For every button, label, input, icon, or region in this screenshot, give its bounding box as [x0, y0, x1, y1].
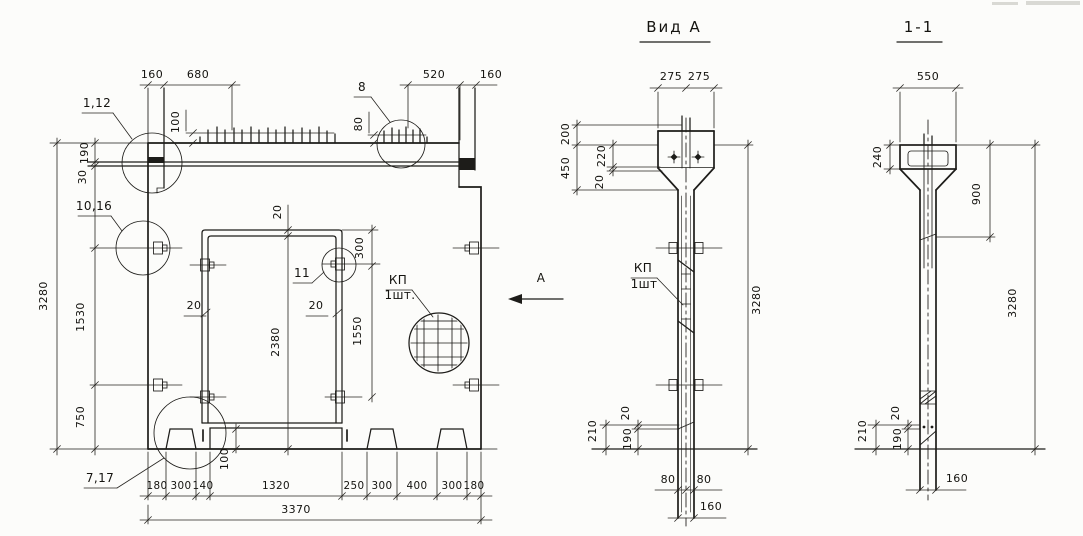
section-dim-240: 240 — [871, 146, 884, 168]
callout-kp-qty: 1шт. — [384, 288, 415, 302]
dim-stud-80: 80 — [352, 117, 365, 132]
view-arrow-label: А — [537, 271, 546, 285]
section-dim-190: 190 — [891, 428, 904, 450]
callout-11: 11 — [294, 266, 310, 280]
section-dims: 550 240 900 3280 210 20 190 160 — [856, 70, 1040, 493]
callout-10-16: 10,16 — [76, 199, 112, 213]
dim-top-160-right: 160 — [480, 68, 502, 81]
view-a-plates — [656, 243, 722, 391]
bottom-feet — [166, 428, 467, 449]
scan-artifact — [992, 1, 1080, 5]
section-dim-550: 550 — [917, 70, 939, 83]
view-a-column — [592, 116, 757, 526]
technical-drawing-page: 160 680 520 160 100 80 190 30 3280 1530 … — [0, 0, 1083, 536]
panel-outline — [50, 88, 497, 449]
view-a-dim-190: 190 — [621, 428, 634, 450]
dim-opening-2380: 2380 — [269, 327, 282, 357]
callout-labels: 1,12 10,16 7,17 8 11 КП 1шт. — [76, 80, 433, 488]
dim-left-30: 30 — [76, 170, 89, 185]
view-a-kp-label: КП 1шт — [631, 261, 683, 305]
dim-bottom-250: 250 — [343, 480, 364, 492]
section-dim-900: 900 — [970, 183, 983, 205]
dim-jamb-20-left: 20 — [187, 299, 202, 312]
view-a-dim-220: 220 — [595, 145, 608, 167]
callout-kp: КП — [389, 273, 407, 287]
dim-opening: 20 2380 300 1550 20 20 100 — [184, 205, 378, 471]
view-a-dim-275b: 275 — [688, 70, 710, 83]
drawing-canvas: 160 680 520 160 100 80 190 30 3280 1530 … — [0, 0, 1083, 536]
view-a: Вид А — [559, 18, 763, 526]
section-1-1-title: 1-1 — [904, 18, 935, 36]
dim-left-3280: 3280 — [37, 281, 50, 311]
view-a-dim-3280: 3280 — [750, 285, 763, 315]
dim-row-top: 160 680 520 160 — [140, 68, 502, 140]
main-view: 160 680 520 160 100 80 190 30 3280 1530 … — [37, 68, 502, 524]
dim-left-190: 190 — [78, 142, 91, 164]
hatch-band — [920, 391, 936, 404]
dim-bottom-1320: 1320 — [262, 480, 290, 492]
view-a-dim-275a: 275 — [660, 70, 682, 83]
dim-opening-1550: 1550 — [351, 316, 364, 346]
dim-bottom-300a: 300 — [170, 480, 191, 492]
section-dim-210: 210 — [856, 420, 869, 442]
view-a-dim-160: 160 — [700, 500, 722, 513]
dim-top-520: 520 — [423, 68, 445, 81]
dim-opening-300: 300 — [353, 237, 366, 259]
view-a-dims: 275 275 200 450 220 20 3280 210 20 190 — [559, 70, 763, 521]
view-a-dim-200: 200 — [559, 123, 572, 145]
section-1-1: 1-1 55 — [855, 18, 1045, 500]
detail-callout-circles — [116, 120, 425, 469]
dim-bottom-300b: 300 — [371, 480, 392, 492]
section-dim-160: 160 — [946, 472, 968, 485]
dim-top-160-left: 160 — [141, 68, 163, 81]
dim-left-750: 750 — [74, 406, 87, 428]
view-direction-arrow: А — [508, 271, 563, 304]
rebar-dowels — [186, 127, 427, 143]
dim-bottom-140: 140 — [192, 480, 213, 492]
door-opening — [202, 230, 342, 423]
dim-opening-20-top: 20 — [271, 205, 284, 220]
dim-bottom-180a: 180 — [146, 480, 167, 492]
dim-jamb-20-right: 20 — [309, 299, 324, 312]
view-a-dim-20b: 20 — [619, 406, 632, 421]
view-a-dim-80b: 80 — [697, 473, 712, 486]
arrowhead-icon — [508, 294, 522, 304]
dim-foot-100: 100 — [218, 448, 231, 470]
dim-stud-100: 100 — [169, 111, 182, 133]
dim-chain-left: 190 30 3280 1530 750 — [37, 138, 98, 455]
callout-1-12: 1,12 — [83, 96, 111, 110]
callout-7-17: 7,17 — [86, 471, 114, 485]
callout-8: 8 — [358, 80, 366, 94]
section-dim-3280: 3280 — [1006, 288, 1019, 318]
mesh-symbol-circle — [409, 313, 469, 373]
view-a-title: Вид А — [646, 18, 701, 36]
dim-bottom-400: 400 — [406, 480, 427, 492]
dim-top-680: 680 — [187, 68, 209, 81]
dim-left-1530: 1530 — [74, 302, 87, 332]
section-dim-20: 20 — [889, 406, 902, 421]
view-a-dim-80a: 80 — [661, 473, 676, 486]
view-a-dim-210: 210 — [586, 420, 599, 442]
view-a-dim-20: 20 — [593, 175, 606, 190]
dim-row-bottom: 180 300 140 1320 250 300 400 300 180 337… — [140, 452, 492, 524]
view-a-dim-450: 450 — [559, 157, 572, 179]
view-a-kp: КП — [634, 261, 652, 275]
dim-bottom-180b: 180 — [463, 480, 484, 492]
view-a-kp-qty: 1шт — [631, 277, 658, 291]
dim-total-3370: 3370 — [281, 503, 311, 516]
dim-bottom-300c: 300 — [441, 480, 462, 492]
